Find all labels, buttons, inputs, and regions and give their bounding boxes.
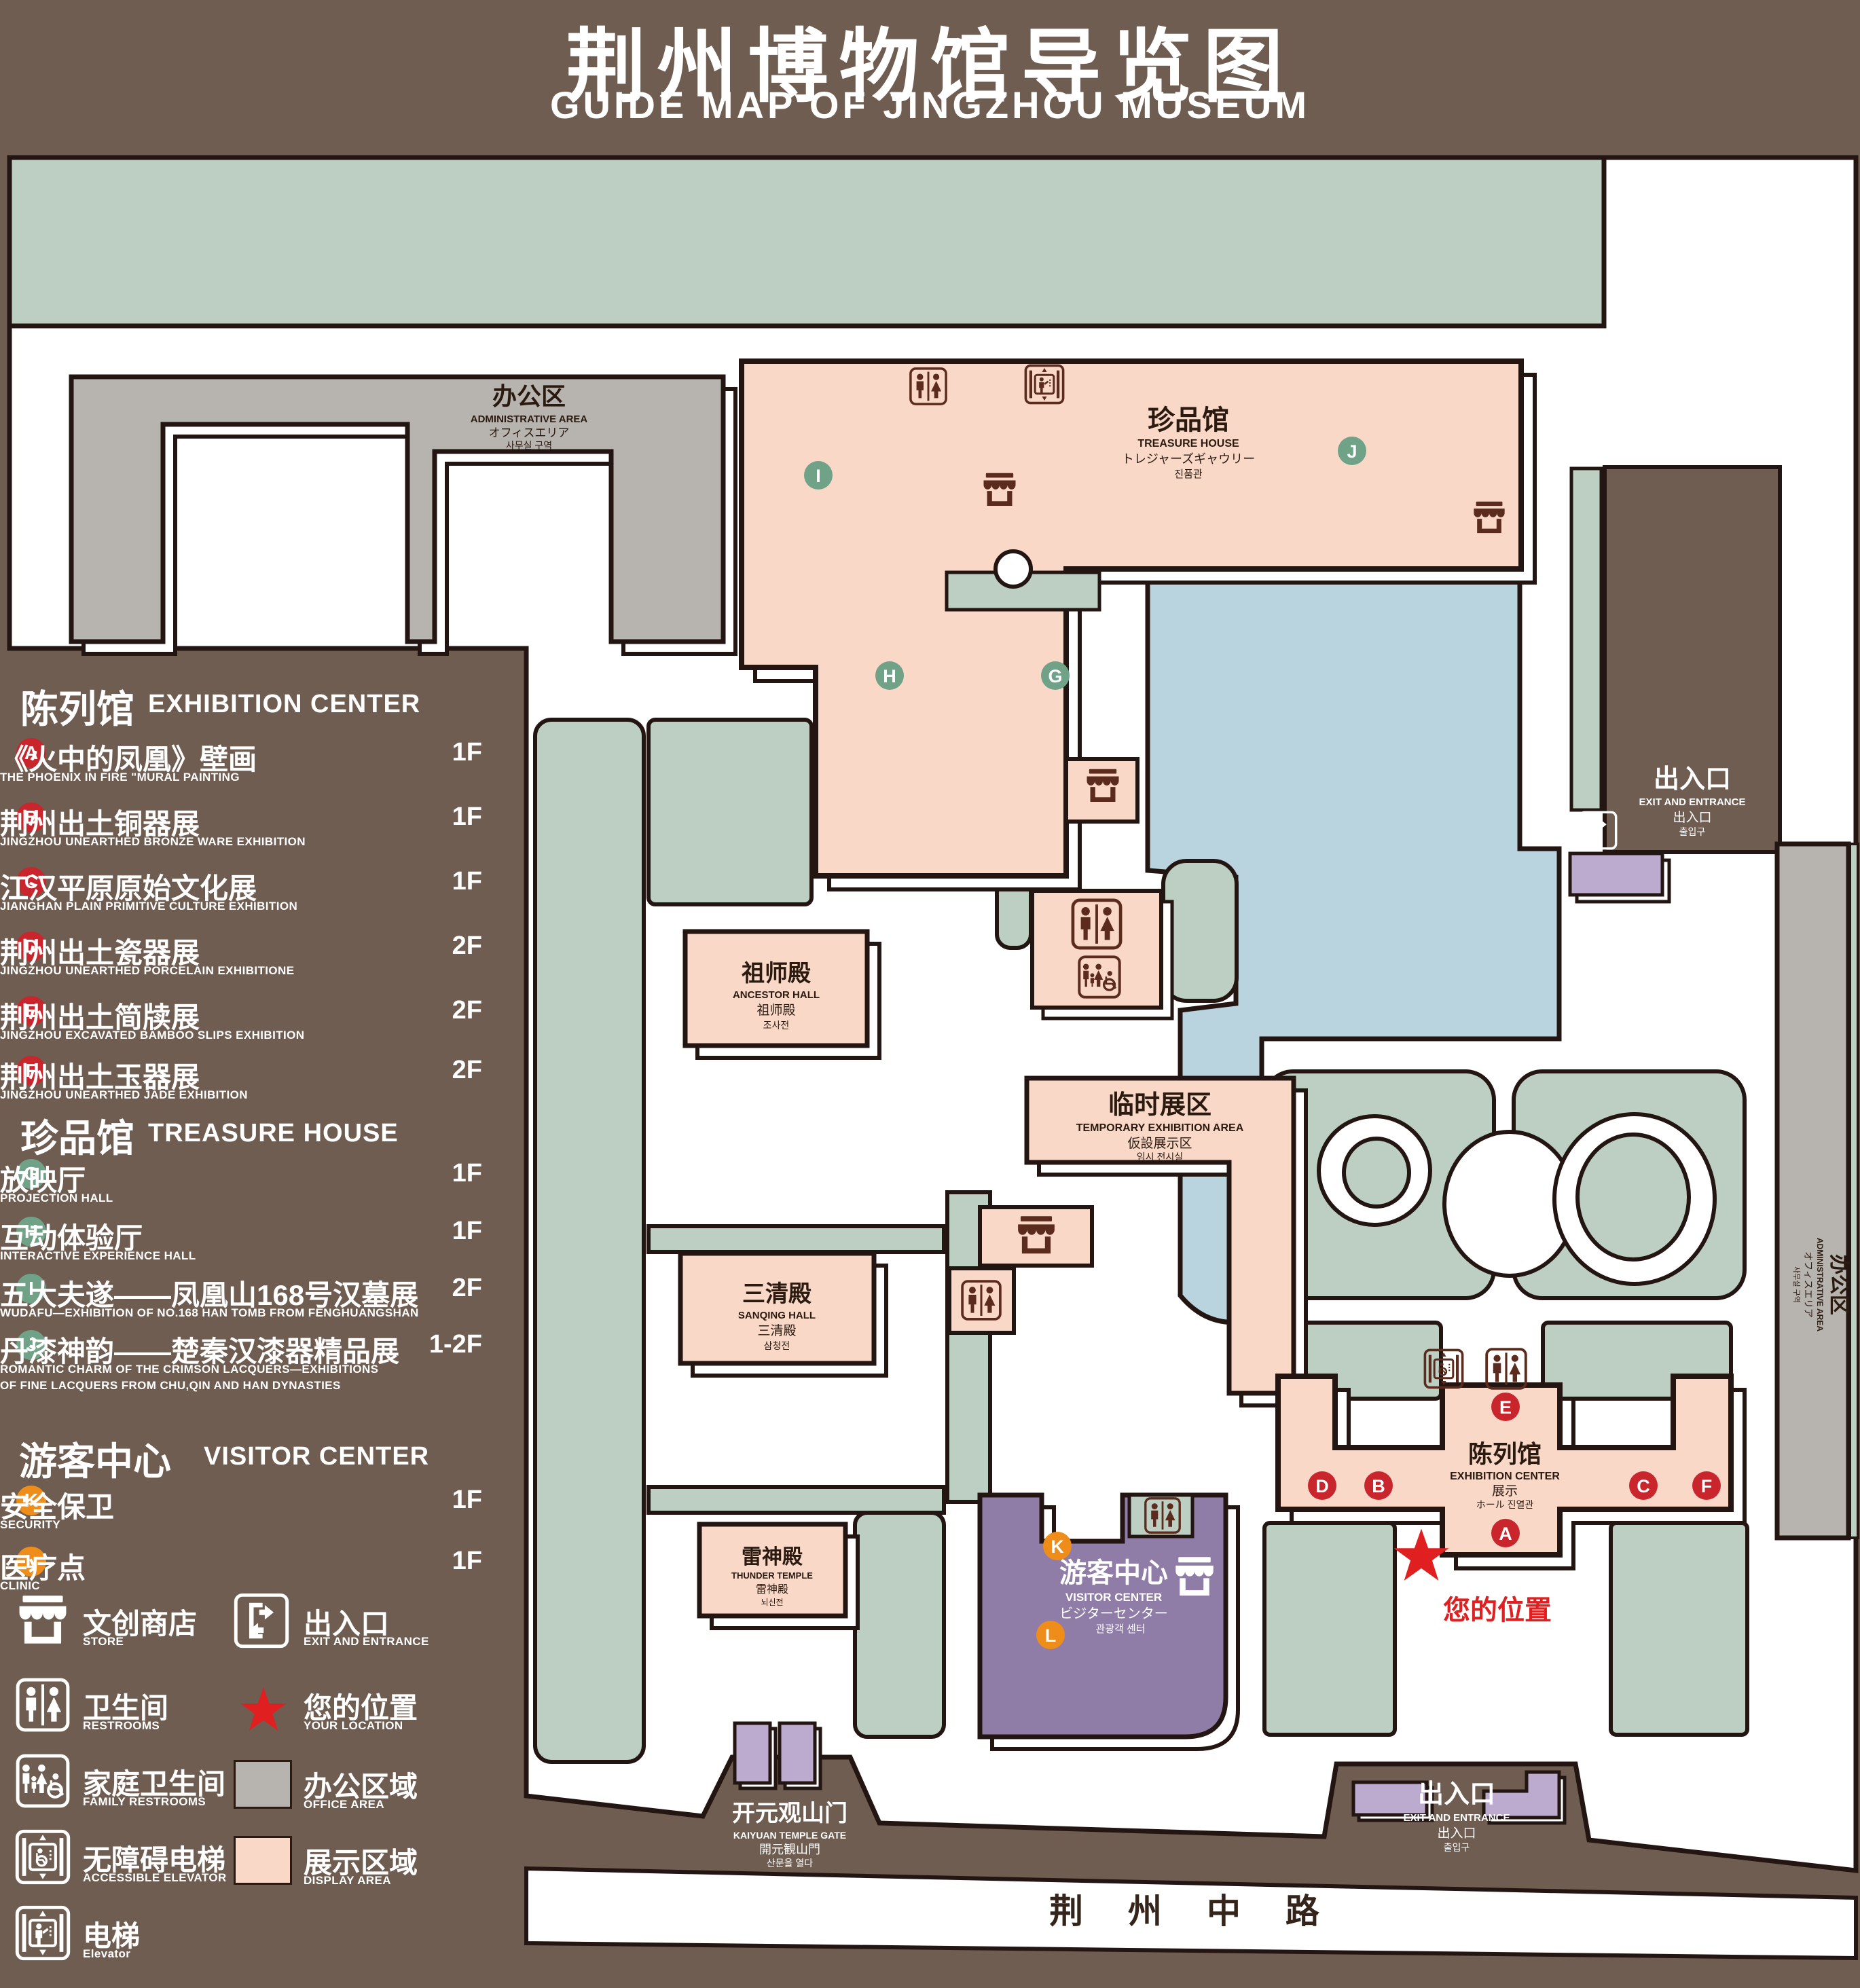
marker-H: H [875, 661, 904, 690]
svg-text:祖师殿: 祖师殿 [742, 961, 811, 987]
svg-text:임시 전시실: 임시 전시실 [1137, 1152, 1183, 1162]
legend-item-L-floor: 1F [421, 1547, 482, 1576]
label-kaiyuan-gate: 开元观山门 KAIYUAN TEMPLE GATE 開元観山門 산문을 열다 [732, 1801, 847, 1869]
legend-store-en: STORE [83, 1635, 124, 1649]
marker-J: J [1338, 437, 1366, 465]
svg-text:조사전: 조사전 [763, 1020, 790, 1031]
svg-text:ADMINISTRATIVE AREA: ADMINISTRATIVE AREA [1815, 1238, 1825, 1331]
svg-text:雷神殿: 雷神殿 [756, 1583, 788, 1596]
svg-text:출입구: 출입구 [1679, 826, 1706, 837]
legend-item-F-floor: 2F [421, 1056, 482, 1085]
svg-text:VISITOR CENTER: VISITOR CENTER [1065, 1591, 1162, 1604]
section-exhibition-center-en: EXHIBITION CENTER [148, 690, 420, 719]
svg-text:관광객 센터: 관광객 센터 [1095, 1623, 1145, 1635]
svg-text:游客中心: 游客中心 [1059, 1558, 1168, 1588]
legend-item-K-en: SECURITY [0, 1518, 60, 1532]
legend-item-J-en2: OF FINE LACQUERS FROM CHU,QIN AND HAN DY… [0, 1379, 341, 1393]
marker-I: I [804, 461, 833, 490]
legend-family-en: FAMILY RESTROOMS [83, 1795, 206, 1809]
store-icon [15, 1593, 71, 1649]
legend-item-J-floor: 1-2F [421, 1330, 482, 1359]
legend-item-E-en: JINGZHOU EXCAVATED BAMBOO SLIPS EXHIBITI… [0, 1029, 304, 1042]
svg-text:仮設展示区: 仮設展示区 [1127, 1136, 1192, 1151]
legend-item-L-en: CLINIC [0, 1579, 40, 1593]
marker-K: K [1043, 1532, 1072, 1560]
marker-A: A [1491, 1519, 1520, 1547]
svg-text:J: J [1347, 441, 1357, 462]
svg-text:办公区: 办公区 [492, 382, 566, 410]
legend-item-B-floor: 1F [421, 803, 482, 832]
guide-map-poster: 荆州博物馆导览图 GUIDE MAP OF JINGZHOU MUSEUM [0, 0, 1860, 1988]
legend-item-H-floor: 1F [421, 1217, 482, 1246]
legend-exit-en: EXIT AND ENTRANCE [304, 1635, 429, 1649]
svg-text:陈列馆: 陈列馆 [1468, 1440, 1542, 1468]
exit-icon [234, 1593, 289, 1649]
your-location-star-icon [239, 1685, 288, 1734]
lawn-top-band [10, 158, 1604, 326]
legend-item-A-en: THE PHOENIX IN FIRE "MURAL PAINTING [0, 771, 240, 784]
label-exit-bottom-right: 出入口 EXIT AND ENTRANCE 出入口 출입구 [1404, 1780, 1510, 1853]
svg-text:开元观山门: 开元观山门 [732, 1801, 847, 1826]
legend-item-J-en: ROMANTIC CHARM OF THE CRIMSON LACQUERS—E… [0, 1363, 378, 1376]
legend-item-G-floor: 1F [421, 1159, 482, 1188]
legend-item-B-en: JINGZHOU UNEARTHED BRONZE WARE EXHIBITIO… [0, 835, 306, 849]
legend-elevator-en: Elevator [83, 1947, 130, 1961]
your-location-label: 您的位置 [1443, 1596, 1552, 1625]
marker-D: D [1308, 1471, 1336, 1500]
building-restrooms [1032, 891, 1172, 1018]
legend-item-K-floor: 1F [421, 1486, 482, 1515]
section-exhibition-center-zh: 陈列馆 [20, 679, 134, 734]
marker-F: F [1692, 1471, 1721, 1500]
legend-display-en: DISPLAY AREA [304, 1874, 391, 1888]
svg-text:三清殿: 三清殿 [757, 1323, 796, 1338]
legend-item-G-en: PROJECTION HALL [0, 1192, 113, 1205]
svg-text:THUNDER TEMPLE: THUNDER TEMPLE [731, 1570, 813, 1581]
svg-text:TREASURE HOUSE: TREASURE HOUSE [1137, 438, 1239, 449]
legend-location-en: YOUR LOCATION [304, 1719, 403, 1733]
svg-text:展示: 展示 [1492, 1484, 1518, 1498]
svg-text:L: L [1045, 1625, 1057, 1646]
legend-item-F-en: JINGZHOU UNEARTHED JADE EXHIBITION [0, 1088, 248, 1102]
svg-text:ホール 진열관: ホール 진열관 [1476, 1499, 1534, 1510]
svg-text:뇌신전: 뇌신전 [761, 1598, 783, 1607]
section-visitor-center-zh: 游客中心 [19, 1431, 171, 1486]
legend-item-I-floor: 2F [421, 1274, 482, 1303]
svg-text:D: D [1315, 1476, 1329, 1496]
svg-text:オフィスエリア: オフィスエリア [489, 426, 570, 439]
svg-text:진품관: 진품관 [1174, 468, 1203, 480]
svg-text:KAIYUAN TEMPLE GATE: KAIYUAN TEMPLE GATE [733, 1830, 846, 1841]
svg-text:C: C [1637, 1476, 1650, 1496]
svg-text:G: G [1048, 666, 1062, 686]
legend-item-A-floor: 1F [421, 738, 482, 767]
svg-text:開元観山門: 開元観山門 [759, 1843, 820, 1856]
svg-text:EXIT AND ENTRANCE: EXIT AND ENTRANCE [1404, 1812, 1510, 1824]
display-area-swatch [234, 1836, 292, 1885]
svg-text:H: H [883, 666, 896, 686]
legend-item-C-floor: 1F [421, 867, 482, 896]
legend-item-D-en: JINGZHOU UNEARTHED PORCELAIN EXHIBITIONE [0, 964, 294, 978]
exit-notch-top-right [1605, 467, 1780, 852]
legend-accessible-en: ACCESSIBLE ELEVATOR [83, 1871, 227, 1885]
svg-text:出入口: 出入口 [1654, 765, 1731, 794]
legend-item-D-floor: 2F [421, 932, 482, 961]
lawn-strip [1571, 468, 1601, 810]
svg-text:ビジターセンター: ビジターセンター [1059, 1606, 1168, 1621]
svg-text:ADMINISTRATIVE AREA: ADMINISTRATIVE AREA [471, 413, 588, 425]
accessible-elevator-icon [1425, 1350, 1462, 1387]
svg-text:EXHIBITION CENTER: EXHIBITION CENTER [1450, 1471, 1560, 1482]
svg-text:荆 州 中 路: 荆 州 中 路 [1049, 1892, 1337, 1930]
svg-text:三清殿: 三清殿 [742, 1281, 812, 1307]
marker-C: C [1629, 1471, 1658, 1500]
legend-restrooms-en: RESTROOMS [83, 1719, 160, 1733]
legend-item-H-en: INTERACTIVE EXPERIENCE HALL [0, 1249, 196, 1263]
svg-text:TEMPORARY EXHIBITION AREA: TEMPORARY EXHIBITION AREA [1076, 1122, 1244, 1134]
building-admin-right [1777, 844, 1848, 1538]
label-road: 荆 州 中 路 [1049, 1892, 1337, 1930]
svg-text:ANCESTOR HALL: ANCESTOR HALL [733, 989, 820, 1001]
office-area-swatch [234, 1760, 292, 1809]
svg-text:A: A [1499, 1524, 1512, 1544]
svg-text:산문을 열다: 산문을 열다 [767, 1858, 813, 1869]
legend-item-C-en: JIANGHAN PLAIN PRIMITIVE CULTURE EXHIBIT… [0, 900, 297, 913]
svg-text:사무실 구역: 사무실 구역 [506, 440, 552, 451]
svg-text:珍品馆: 珍品馆 [1148, 405, 1229, 435]
section-treasure-house-en: TREASURE HOUSE [148, 1119, 399, 1148]
svg-text:EXIT AND ENTRANCE: EXIT AND ENTRANCE [1639, 796, 1746, 808]
svg-text:I: I [816, 466, 821, 486]
svg-text:출입구: 출입구 [1444, 1842, 1470, 1853]
svg-text:祖师殿: 祖师殿 [756, 1003, 795, 1018]
accessible-elevator-icon [15, 1829, 71, 1885]
svg-text:临时展区: 临时展区 [1108, 1091, 1211, 1120]
family-restroom-icon [15, 1753, 71, 1809]
svg-text:雷神殿: 雷神殿 [742, 1546, 803, 1568]
svg-text:B: B [1372, 1476, 1385, 1496]
svg-text:オフィスエリア: オフィスエリア [1803, 1251, 1814, 1318]
marker-L: L [1036, 1621, 1065, 1649]
section-visitor-center-en: VISITOR CENTER [204, 1442, 429, 1471]
svg-text:トレジャーズギャウリー: トレジャーズギャウリー [1122, 452, 1255, 466]
marker-E: E [1491, 1393, 1520, 1421]
svg-text:办公区: 办公区 [1827, 1254, 1850, 1315]
svg-text:E: E [1499, 1397, 1512, 1418]
legend-item-E-floor: 2F [421, 996, 482, 1025]
legend-office-en: OFFICE AREA [304, 1798, 384, 1811]
legend-item-I-en: WUDAFU—EXHIBITION OF NO.168 HAN TOMB FRO… [0, 1306, 419, 1320]
svg-text:F: F [1701, 1476, 1713, 1496]
svg-text:K: K [1051, 1536, 1064, 1557]
svg-text:出入口: 出入口 [1437, 1826, 1476, 1841]
marker-G: G [1041, 661, 1070, 690]
marker-B: B [1364, 1471, 1393, 1500]
svg-text:出入口: 出入口 [1673, 810, 1711, 825]
svg-text:SANQING HALL: SANQING HALL [738, 1310, 816, 1321]
svg-text:사무실 구역: 사무실 구역 [1792, 1266, 1801, 1303]
elevator-icon [15, 1905, 71, 1961]
restrooms-icon [15, 1677, 71, 1733]
svg-text:삼청전: 삼청전 [764, 1340, 790, 1351]
section-treasure-house-zh: 珍品馆 [20, 1108, 134, 1163]
svg-text:出入口: 出入口 [1418, 1780, 1495, 1809]
